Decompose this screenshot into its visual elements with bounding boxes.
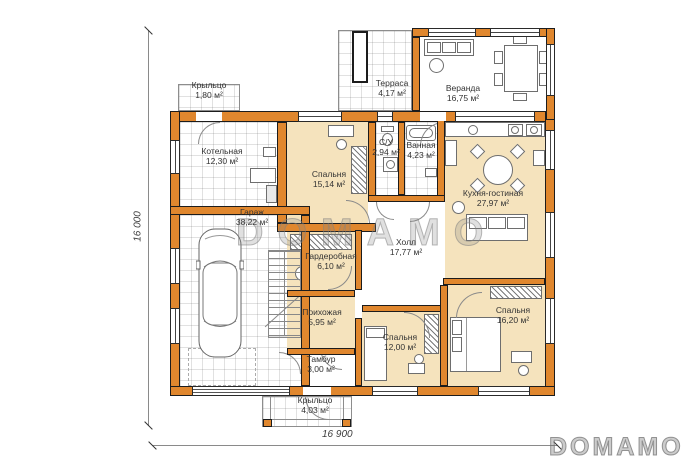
room-label-bedroom-15: Спальня15,14 м²	[312, 170, 346, 189]
window	[478, 386, 530, 396]
terrace-pillar	[352, 31, 368, 83]
room-label-wardrobe: Гардеробная6,10 м²	[305, 252, 356, 271]
chair-icon	[494, 73, 503, 86]
window	[490, 28, 540, 37]
terrace-deck	[338, 30, 412, 111]
window	[545, 212, 555, 258]
sofa-cushion-icon	[427, 42, 441, 53]
chair-icon	[513, 36, 527, 44]
room-label-hall: Холл17,77 м²	[390, 238, 422, 257]
chair-icon	[513, 93, 527, 101]
water-heater-icon	[266, 185, 277, 203]
chair-icon	[414, 354, 424, 364]
room-label-bedroom-16: Спальня16,20 м²	[496, 306, 530, 325]
window	[298, 111, 342, 122]
room-label-boiler: Котельная12,30 м²	[201, 147, 242, 166]
chair-icon	[336, 139, 347, 150]
room-label-porch-top: Крыльцо1,80 м²	[192, 81, 227, 100]
dining-table-round-icon	[483, 155, 513, 185]
floor-plan: 16 000 16 900	[0, 0, 700, 466]
domamo-logo: DOMAMO	[549, 433, 684, 462]
wardrobe-icon	[351, 146, 367, 194]
blanket-line	[466, 318, 467, 371]
toilet-icon	[381, 126, 394, 132]
dimension-line-horizontal	[152, 445, 558, 446]
room-label-veranda: Веранда16,75 м²	[446, 84, 480, 103]
pier	[342, 419, 351, 427]
fridge-icon	[533, 150, 545, 166]
dimension-line-vertical	[148, 30, 149, 426]
room-label-bedroom-12: Спальня12,00 м²	[383, 333, 417, 352]
window	[170, 140, 180, 174]
room-label-bathroom: Ванная4,23 м²	[406, 141, 435, 160]
room-label-entry-hall: Прихожая5,95 м²	[302, 308, 341, 327]
wall	[368, 195, 445, 202]
room-label-terrace: Терраса4,17 м²	[376, 79, 409, 98]
stove-burner-icon	[511, 126, 519, 134]
desk-icon	[511, 351, 532, 363]
dimension-height-label: 16 000	[133, 197, 144, 257]
room-label-vestibule: Тамбур3,00 м²	[307, 355, 336, 374]
wall	[443, 278, 545, 285]
room-label-kitchen-living: Кухня-гостиная27,97 м²	[463, 189, 523, 208]
wall	[412, 37, 420, 111]
pier	[263, 419, 272, 427]
wall	[355, 318, 362, 386]
stair-direction-line	[284, 252, 285, 336]
sofa-cushion-icon	[457, 42, 471, 53]
wardrobe-icon	[490, 286, 542, 299]
wall	[440, 285, 448, 386]
window	[372, 386, 418, 396]
window	[428, 28, 476, 37]
boiler-equipment-icon	[263, 147, 276, 157]
tall-cabinet-icon	[445, 140, 457, 166]
pillow-icon	[452, 320, 462, 335]
window	[545, 298, 555, 344]
boiler-unit-icon	[250, 168, 276, 183]
door-opening	[420, 112, 446, 121]
wall	[287, 290, 355, 297]
window	[455, 111, 535, 122]
chair-icon	[518, 365, 529, 376]
pillow-icon	[452, 337, 462, 352]
oven-dial-icon	[530, 126, 538, 134]
window	[545, 130, 555, 170]
plant-icon	[429, 58, 444, 73]
window	[546, 44, 555, 96]
garage-gate	[192, 386, 290, 396]
room-label-garage: Гараж38,22 м²	[236, 208, 268, 227]
desk-icon	[328, 125, 354, 137]
wall	[368, 122, 376, 202]
room-label-wc: С/У2,94 м²	[372, 138, 400, 157]
room-label-porch-bottom: Крыльцо4,03 м²	[298, 396, 333, 415]
door-opening	[303, 387, 331, 395]
kitchen-sink-icon	[468, 125, 478, 135]
wall	[362, 305, 448, 312]
door-opening	[196, 112, 222, 121]
sink-icon	[425, 168, 437, 177]
dining-table-icon	[504, 45, 538, 92]
watermark: DOMAMO	[236, 212, 497, 255]
sofa-cushion-icon	[507, 217, 525, 229]
sofa-cushion-icon	[442, 42, 456, 53]
washer-drum-icon	[386, 160, 395, 169]
wall	[437, 111, 445, 202]
window	[170, 308, 180, 344]
window	[170, 248, 180, 284]
window	[377, 111, 393, 122]
desk-icon	[408, 363, 425, 374]
wall	[398, 122, 405, 195]
dimension-width-label: 16 900	[322, 429, 353, 440]
chair-icon	[494, 51, 503, 64]
